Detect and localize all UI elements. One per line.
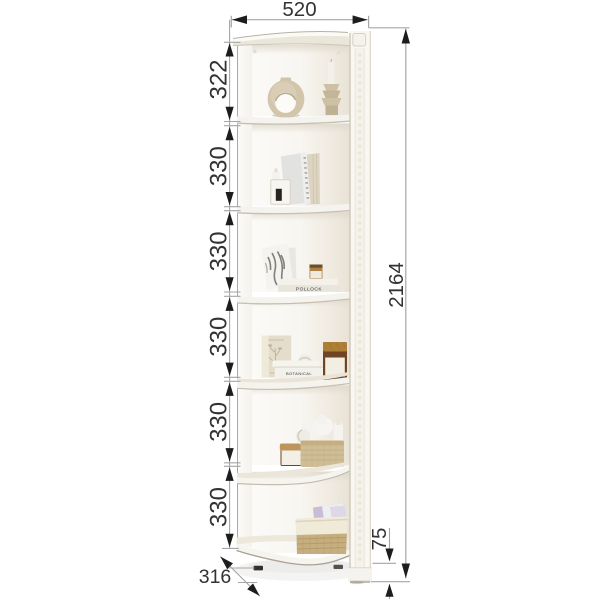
svg-text:330: 330 — [205, 402, 232, 442]
svg-text:330: 330 — [205, 231, 232, 271]
svg-text:BOTANICAL: BOTANICAL — [286, 371, 312, 376]
svg-text:322: 322 — [205, 59, 232, 99]
svg-text:330: 330 — [205, 487, 232, 527]
svg-text:2164: 2164 — [385, 262, 408, 308]
svg-text:75: 75 — [368, 528, 391, 551]
svg-text:520: 520 — [282, 0, 316, 21]
svg-text:330: 330 — [205, 146, 232, 186]
svg-text:316: 316 — [199, 566, 232, 588]
svg-text:330: 330 — [205, 317, 232, 357]
svg-text:POLLOCK: POLLOCK — [296, 287, 322, 293]
